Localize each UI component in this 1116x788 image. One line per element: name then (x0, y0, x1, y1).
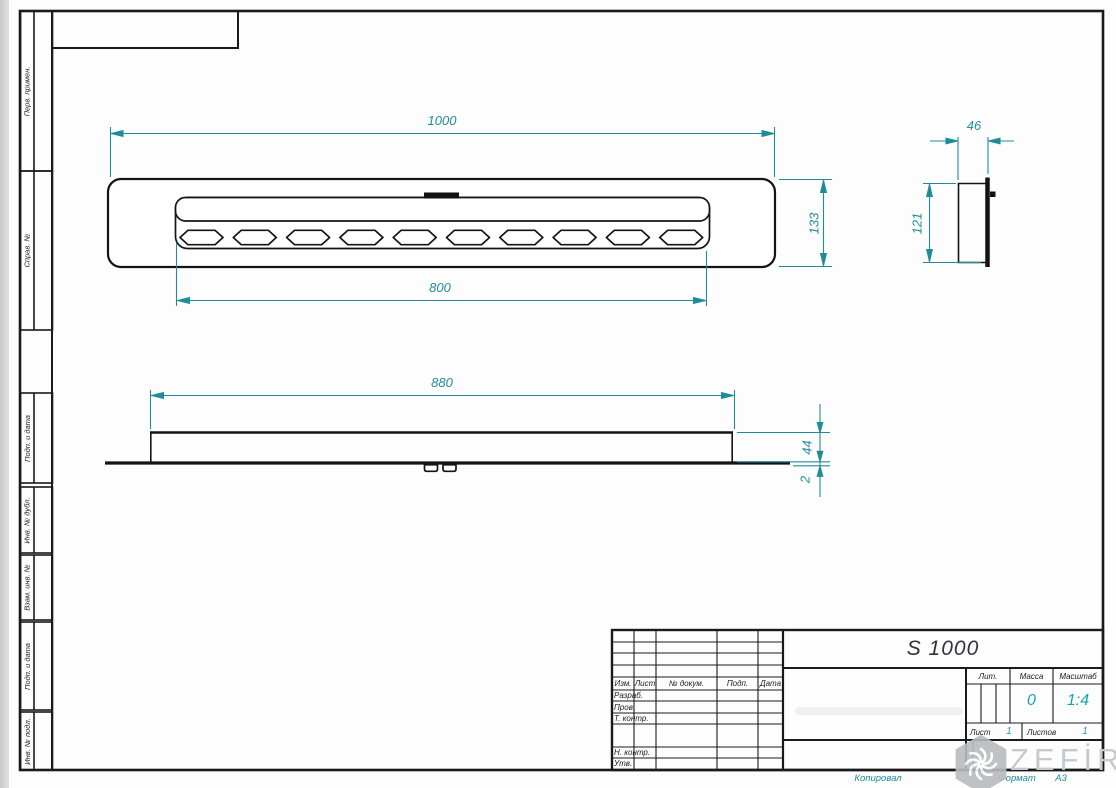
tb-sheets-label: Листов (1027, 727, 1056, 738)
tb-col-izm: Изм. (612, 679, 634, 688)
tb-row-prov: Пров. (614, 702, 635, 713)
dim-body-length: 880 (410, 375, 474, 390)
plan-view (108, 179, 775, 267)
side-view (959, 178, 996, 268)
margin-stamp-podp-data-2: Подп. и дата (20, 622, 34, 710)
tb-col-data: Дата (758, 679, 783, 688)
side-tab (990, 192, 996, 198)
tb-row-razrab: Разраб. (614, 690, 643, 701)
drawing-linework (0, 0, 1116, 788)
dim-side-depth: 46 (950, 118, 998, 133)
margin-stamp-podp-data-1: Подп. и дата (20, 393, 34, 483)
tb-col-podp: Подп. (717, 679, 758, 688)
tb-col-list: Лист (634, 679, 656, 688)
front-view (105, 432, 790, 471)
tb-row-n-kontr: Н. контр. (614, 747, 650, 758)
tb-scale-label: Масштаб (1053, 672, 1103, 681)
faded-watermark-line (795, 707, 963, 715)
zefire-logo-text: ZEFİRE (1010, 742, 1116, 778)
tb-row-t-kontr: Т. контр. (614, 713, 649, 724)
margin-stamp-sprav-no: Справ. № (20, 171, 34, 330)
tb-col-dokum: № докум. (656, 679, 717, 688)
margin-stamp-vzam-inv: Взам. инв. № (20, 555, 34, 620)
tb-sheets-value: 1 (1076, 726, 1094, 737)
dim-side-height: 121 (910, 199, 925, 249)
margin-stamp-inv-podl: Инв. № подл. (20, 712, 34, 770)
mount-clips (425, 465, 456, 472)
dim-overall-height: 133 (807, 199, 822, 249)
tb-mass-label: Масса (1010, 672, 1053, 681)
dim-plate-thickness: 2 (798, 455, 813, 505)
footer-copied-label: Копировал (840, 773, 916, 784)
dim-slot-length: 800 (408, 280, 472, 295)
tb-row-utv: Утв. (614, 758, 632, 769)
dim-overall-length: 1000 (410, 113, 474, 128)
tb-lit-label: Лит. (966, 672, 1010, 681)
tb-mass-value: 0 (1010, 692, 1053, 710)
drawing-sheet: Перв. примен. Справ. № Подп. и дата Инв.… (0, 0, 1116, 788)
margin-stamp-perv-primen: Перв. примен. (20, 11, 34, 171)
lid-handle (424, 193, 459, 199)
zefire-logo-icon (951, 734, 1011, 788)
part-designation: S 1000 (783, 637, 1103, 661)
margin-stamp-inv-dubl: Инв. № дубл. (20, 487, 34, 553)
tb-scale-value: 1:4 (1053, 692, 1103, 710)
